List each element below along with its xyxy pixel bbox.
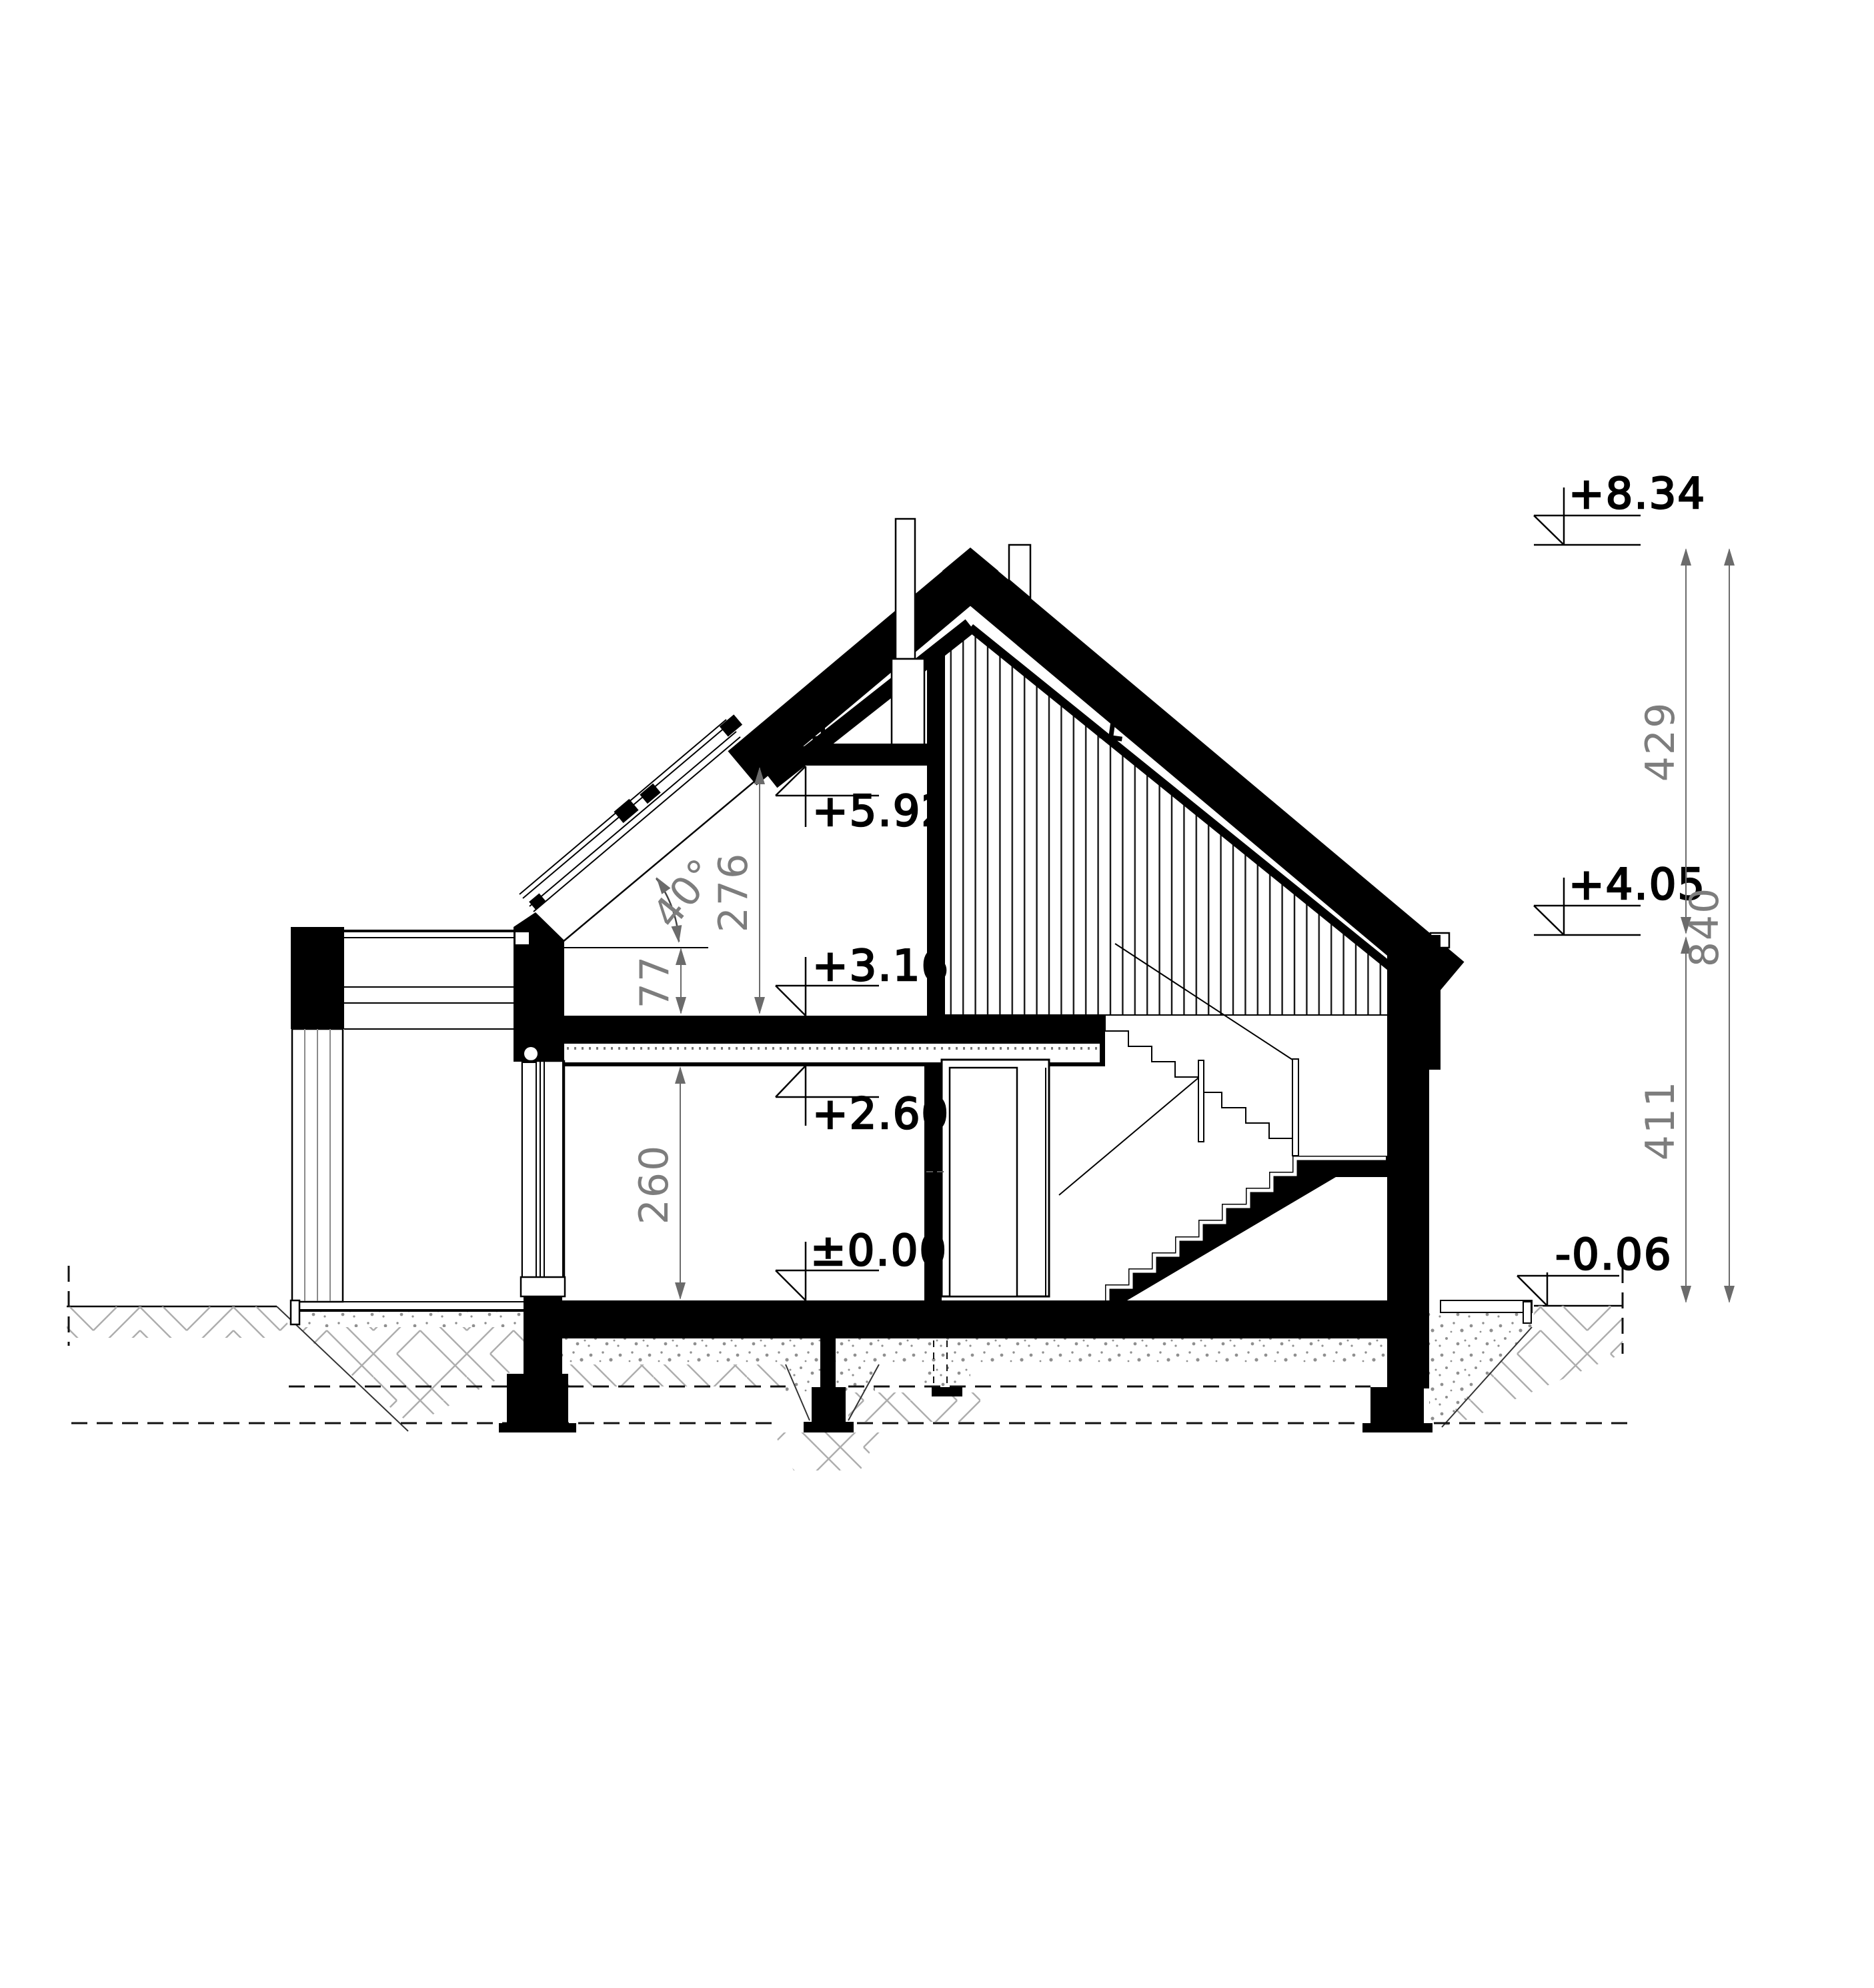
dim-label-77: 77 <box>632 955 678 1008</box>
stairs <box>1059 1016 1388 1300</box>
window <box>521 1061 565 1296</box>
ext-slab-edge <box>1523 1302 1531 1323</box>
porch <box>291 927 524 1324</box>
window-frame <box>522 1062 536 1277</box>
wall-sleeve-hole <box>524 1047 538 1060</box>
cross-section-drawing: +5.92 +3.16 +2.60 ±0.00 <box>0 0 1874 1988</box>
attic-slab <box>564 1016 1105 1044</box>
attic-slab-edge <box>1100 1016 1105 1066</box>
ext-slab-band <box>1441 1300 1532 1312</box>
gable-cladding <box>944 632 1388 1015</box>
chimney-left-lower <box>892 659 924 752</box>
dim-label-840: 840 <box>1681 887 1728 968</box>
right-wall-lower <box>1387 1067 1429 1388</box>
footing-left-base <box>499 1423 576 1432</box>
soil-hatch-under-terrace <box>299 1327 525 1426</box>
marker-collar-ceiling: +5.92 <box>776 766 950 836</box>
flag-terrain: -0.06 <box>1517 1230 1673 1306</box>
marker-ground-ceiling: +2.60 <box>776 1066 950 1139</box>
footing-right-base <box>1362 1423 1433 1432</box>
marker-ground-floor: ±0.00 <box>776 1226 948 1300</box>
level-label-ground-ceiling: +2.60 <box>812 1090 950 1139</box>
ground-floor-slab <box>524 1300 1429 1338</box>
chimney-left-upper <box>896 519 915 659</box>
porch-column-head <box>291 927 344 1029</box>
level-label-ground-floor: ±0.00 <box>810 1226 948 1276</box>
level-label-ridge: +8.34 <box>1569 469 1706 519</box>
footing-midwall <box>932 1387 962 1396</box>
newel-post <box>1292 1059 1298 1156</box>
sand-terrace <box>299 1311 525 1327</box>
skylight-hardware-mid1 <box>614 799 638 823</box>
foundation-stem-central <box>820 1338 836 1388</box>
porch-column <box>292 1029 343 1302</box>
footing-left-pier <box>507 1374 568 1424</box>
level-label-terrain: -0.06 <box>1555 1230 1673 1280</box>
cladding-stripes <box>944 632 1388 1015</box>
column-base-bracket <box>291 1300 299 1324</box>
sand-under-slab <box>525 1338 1429 1365</box>
dim-label-429: 429 <box>1637 702 1684 782</box>
soil-hatch-below-footing <box>774 1432 880 1470</box>
footing-central-pier <box>812 1387 846 1422</box>
marker-attic-floor: +3.16 <box>776 942 950 1016</box>
right-wall-upper <box>1387 935 1441 1070</box>
skylight-hardware-bottom <box>529 893 546 910</box>
level-label-attic-floor: +3.16 <box>812 942 950 991</box>
gutter-left <box>515 932 530 945</box>
dim-label-276: 276 <box>710 852 757 933</box>
window-sill <box>521 1277 565 1296</box>
skylight-hardware-top <box>720 714 742 736</box>
level-label-collar: +5.92 <box>812 787 950 836</box>
elevation-flags: +8.34 +4.05 -0.06 <box>1517 469 1706 1306</box>
soil-hatch-mid-left <box>562 1364 786 1386</box>
baluster-post <box>1198 1060 1204 1142</box>
dim-label-260: 260 <box>631 1144 678 1225</box>
handrail-lower-flight <box>1059 1075 1202 1195</box>
skylight-hardware-mid2 <box>640 784 660 804</box>
footing-right-pier <box>1370 1387 1424 1424</box>
door-leaf <box>950 1068 1017 1296</box>
dim-label-411: 411 <box>1637 1080 1684 1161</box>
footing-central-base <box>804 1422 854 1432</box>
soil-hatch-left-terrain <box>67 1306 291 1338</box>
soil-hatch-mid-right <box>848 1392 980 1422</box>
lower-flight-and-landing <box>1105 1156 1388 1300</box>
flag-eave: +4.05 <box>1534 860 1706 935</box>
flag-ridge: +8.34 <box>1534 469 1706 545</box>
